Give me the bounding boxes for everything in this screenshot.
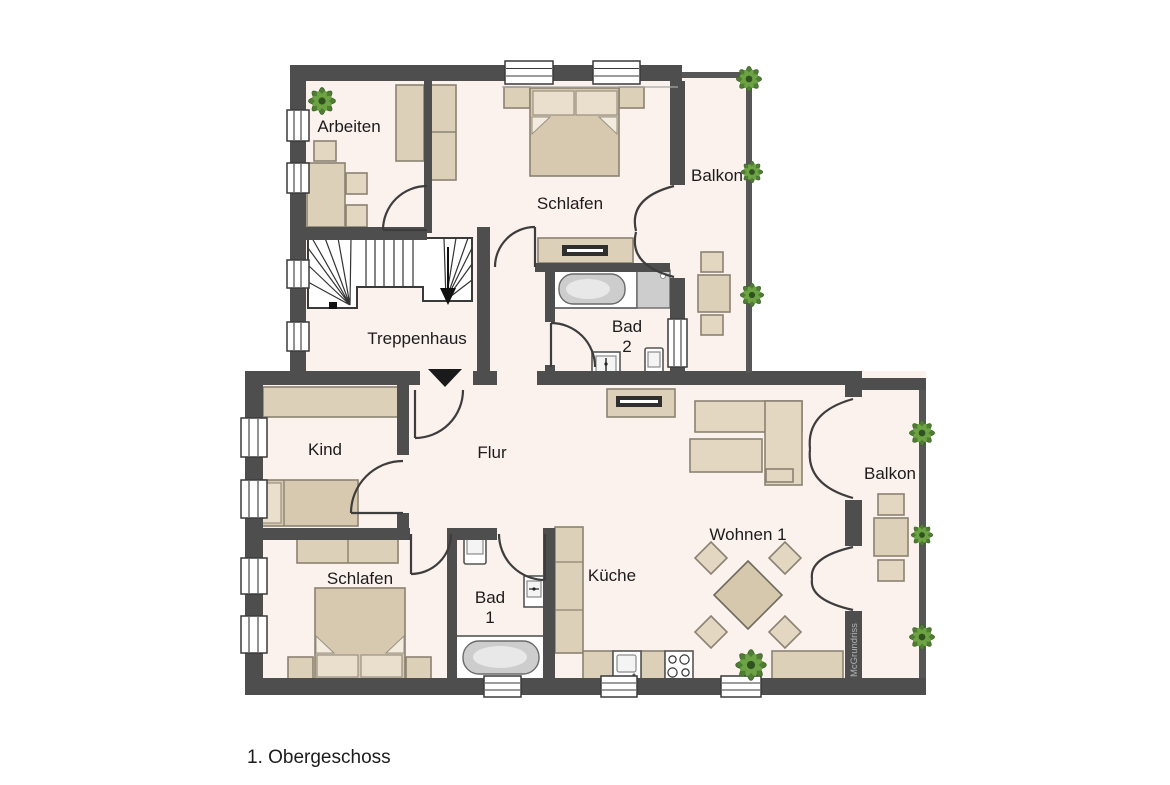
balcony-chair — [701, 315, 723, 335]
room-label-balkon-top: Balkon — [691, 166, 743, 185]
floor-caption: 1. Obergeschoss — [247, 747, 391, 768]
window — [287, 163, 309, 193]
window — [241, 480, 267, 518]
window — [241, 558, 267, 594]
window — [287, 110, 309, 141]
wardrobe — [396, 85, 424, 161]
sofa-ottoman — [690, 439, 762, 472]
room-label-kueche: Küche — [588, 566, 636, 585]
room-label-schlafen-bottom: Schlafen — [327, 569, 393, 588]
nightstand — [504, 87, 530, 108]
room-label-bad1-number: 1 — [485, 608, 494, 627]
balcony-chair — [701, 252, 723, 272]
nightstand — [619, 87, 644, 108]
balcony-chair — [878, 560, 904, 581]
room-label-balkon-bottom: Balkon — [864, 464, 916, 483]
plant-icon — [736, 650, 767, 681]
floorplan: Arbeiten Schlafen Balkon Bad 2 Treppenha… — [0, 0, 1170, 785]
nightstand — [288, 657, 313, 679]
plant-icon — [740, 283, 763, 306]
stair-start-dot — [329, 302, 337, 309]
room-label-schlafen-top: Schlafen — [537, 194, 603, 213]
kitchen-cabinet — [555, 527, 583, 653]
office-chair — [314, 141, 336, 161]
plant-icon — [741, 161, 763, 183]
room-label-arbeiten: Arbeiten — [317, 117, 380, 136]
wardrobe — [263, 387, 398, 417]
plant-icon — [911, 524, 933, 546]
room-label-treppenhaus: Treppenhaus — [367, 329, 467, 348]
chair — [346, 173, 367, 194]
window — [505, 61, 553, 84]
sideboard — [772, 651, 843, 679]
window — [601, 676, 637, 697]
window — [241, 418, 267, 457]
room-label-flur: Flur — [477, 443, 507, 462]
plant-icon — [736, 66, 761, 91]
window — [593, 61, 640, 84]
kitchen-counter — [583, 651, 613, 679]
balcony-table — [698, 275, 730, 312]
room-label-bad1: Bad — [475, 588, 505, 607]
window — [721, 676, 761, 697]
balcony-chair — [878, 494, 904, 515]
plant-icon — [909, 624, 934, 649]
balcony-table — [874, 518, 908, 556]
window — [484, 676, 521, 697]
kitchen-counter — [641, 651, 665, 679]
watermark: McGrundriss — [849, 623, 860, 677]
room-label-bad2: Bad — [612, 317, 642, 336]
nightstand — [406, 657, 431, 679]
window — [287, 260, 309, 288]
room-label-bad2-number: 2 — [622, 337, 631, 356]
plant-icon — [309, 88, 336, 115]
window — [668, 319, 687, 367]
room-label-wohnen: Wohnen 1 — [709, 525, 786, 544]
window — [287, 322, 309, 351]
room-label-kind: Kind — [308, 440, 342, 459]
plant-icon — [909, 420, 934, 445]
chair — [346, 205, 367, 227]
window — [241, 616, 267, 653]
sofa-armrest — [766, 469, 793, 482]
desk — [307, 163, 345, 227]
